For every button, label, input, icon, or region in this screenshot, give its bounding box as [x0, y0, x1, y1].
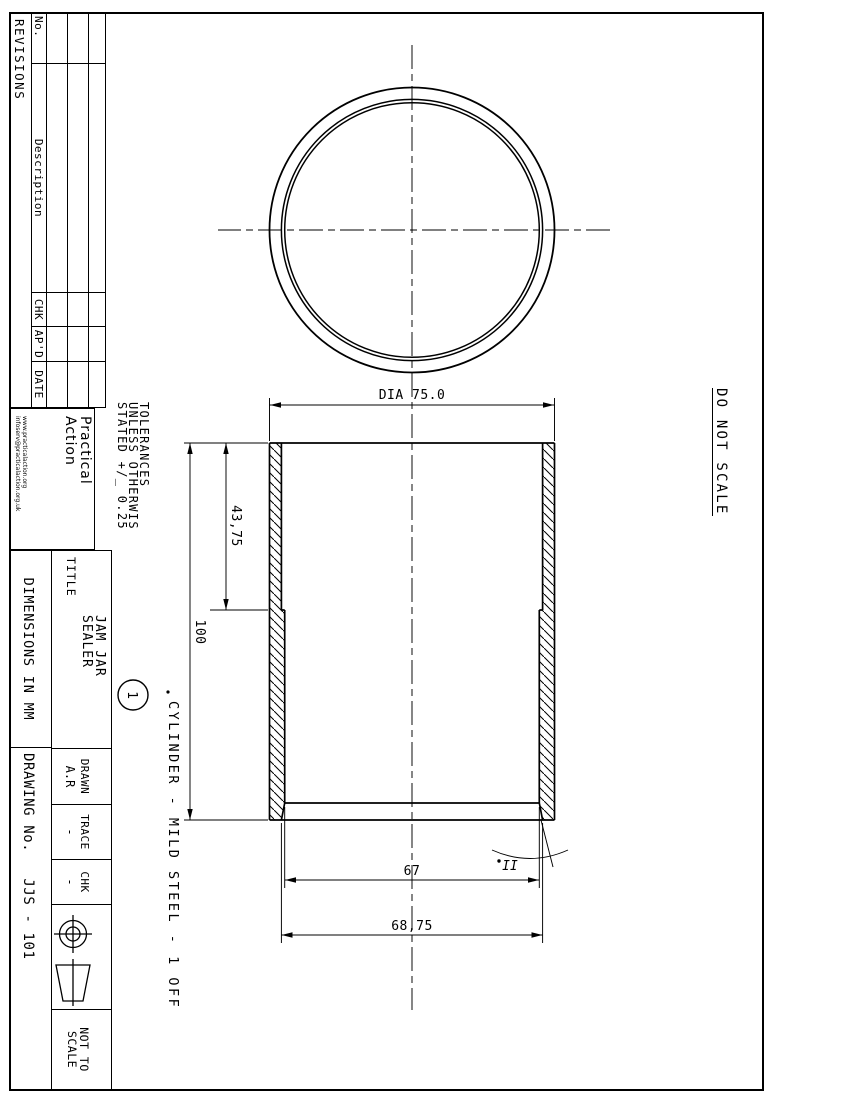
- logo-email: infoserv@practicalaction.org.uk: [14, 416, 21, 511]
- dim-bore-large: 68,75: [391, 919, 433, 934]
- revision-cell: [67, 64, 88, 293]
- logo-text: Practical: [77, 416, 92, 549]
- dim-step-length: 43,75: [228, 505, 243, 547]
- revisions-header-no: No.: [31, 13, 46, 64]
- tolerances-line: STATED +/_ 0.25: [116, 402, 127, 562]
- drawn-cell: DRAWN A.R: [52, 748, 111, 804]
- logo-box: Practical Action www.practicalaction.org…: [10, 408, 95, 550]
- logo-website: www.practicalaction.org: [21, 416, 28, 511]
- revisions-header-apd: AP'D: [31, 327, 46, 362]
- revision-cell: [88, 362, 105, 408]
- title-block-top-row: TITLE JAM JAR SEALER DRAWN A.R TRACE - C…: [51, 551, 111, 1089]
- trace-value: -: [64, 828, 78, 835]
- part-note: CYLINDER - MILD STEEL - 1 OFF: [165, 701, 181, 1009]
- revision-cell: [46, 13, 67, 64]
- projection-symbol-cell: [52, 904, 111, 1009]
- drawing-title-line: JAM JAR: [93, 615, 106, 677]
- drawing-number-value: JJS - 101: [20, 878, 36, 959]
- scale-note-cell: NOT TO SCALE: [52, 1009, 111, 1089]
- title-label: TITLE: [64, 557, 78, 597]
- revision-cell: [67, 362, 88, 408]
- revision-cell: [46, 64, 67, 293]
- dim-bore-small: 67: [404, 864, 421, 879]
- scale-note-line: SCALE: [66, 1031, 78, 1068]
- revision-cell: [67, 13, 88, 64]
- chk-value: -: [64, 878, 78, 885]
- dimensions-note-cell: DIMENSIONS IN MM: [11, 551, 51, 748]
- drawing-sheet: DIA 75.0 43,75 100 67 68,75 II 1 CYLINDE…: [0, 0, 850, 1100]
- detail-label: II: [502, 859, 518, 874]
- drawing-title: JAM JAR SEALER: [80, 615, 105, 677]
- drawn-label: DRAWN: [79, 759, 92, 795]
- revisions-header-chk: CHK: [31, 293, 46, 327]
- revision-cell: [67, 293, 88, 327]
- balloon-number: 1: [124, 691, 139, 699]
- detail-dot: [497, 859, 500, 862]
- first-angle-projection-symbol: [53, 905, 111, 1008]
- trace-cell: TRACE -: [52, 804, 111, 859]
- drawing-number-cell: DRAWING No. JJS - 101: [11, 748, 51, 1089]
- revision-cell: [46, 327, 67, 362]
- scale-note-line: NOT TO: [78, 1027, 90, 1072]
- dimension-arrows: [187, 402, 554, 937]
- revision-cell: [67, 327, 88, 362]
- drawing-title-line: SEALER: [80, 615, 93, 677]
- title-block-bottom-row: DIMENSIONS IN MM DRAWING No. JJS - 101: [11, 551, 51, 1089]
- revision-cell: [46, 293, 67, 327]
- logo-text: Action: [62, 416, 77, 549]
- revisions-header-description: Description: [31, 64, 46, 293]
- note-dot: [166, 690, 169, 693]
- revision-cell: [88, 327, 105, 362]
- revisions-title-bar: REVISIONS: [9, 13, 31, 408]
- title-cell: TITLE JAM JAR SEALER: [52, 551, 111, 748]
- trace-label: TRACE: [79, 814, 92, 850]
- chk-cell: CHK -: [52, 859, 111, 904]
- dim-outer-diameter: DIA 75.0: [379, 388, 446, 403]
- tolerances-note: TOLERANCES UNLESS OTHERWIS STATED +/_ 0.…: [116, 402, 149, 562]
- drawn-value: A.R: [64, 766, 78, 788]
- revisions-table: No. Description CHK AP'D DATE REVISIONS: [10, 13, 106, 408]
- revision-cell: [88, 293, 105, 327]
- drawing-number-label: DRAWING No.: [20, 753, 36, 852]
- do-not-scale-note: DO NOT SCALE: [712, 388, 729, 516]
- revision-cell: [88, 13, 105, 64]
- revision-cell: [88, 64, 105, 293]
- revision-cell: [46, 362, 67, 408]
- dim-total-length: 100: [192, 620, 207, 645]
- chk-label: CHK: [79, 871, 92, 892]
- logo-contact: www.practicalaction.org infoserv@practic…: [14, 416, 28, 511]
- title-block: TITLE JAM JAR SEALER DRAWN A.R TRACE - C…: [10, 550, 112, 1090]
- part-balloon: 1: [118, 680, 148, 710]
- revisions-grid: No. Description CHK AP'D DATE: [31, 13, 105, 408]
- revisions-header-date: DATE: [31, 362, 46, 408]
